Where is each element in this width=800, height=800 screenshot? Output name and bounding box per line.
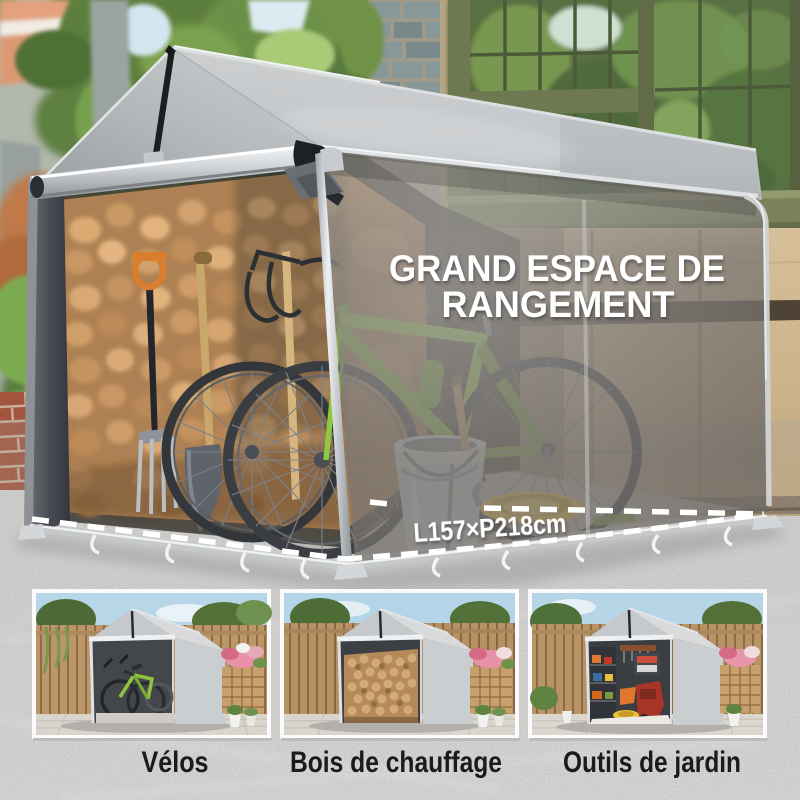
svg-text:Outils de jardin: Outils de jardin [563,746,741,779]
svg-text:Bois de chauffage: Bois de chauffage [290,746,502,779]
svg-text:Vélos: Vélos [142,746,209,779]
svg-text:GRAND ESPACE DE: GRAND ESPACE DE [389,248,725,289]
svg-text:RANGEMENT: RANGEMENT [442,284,675,325]
